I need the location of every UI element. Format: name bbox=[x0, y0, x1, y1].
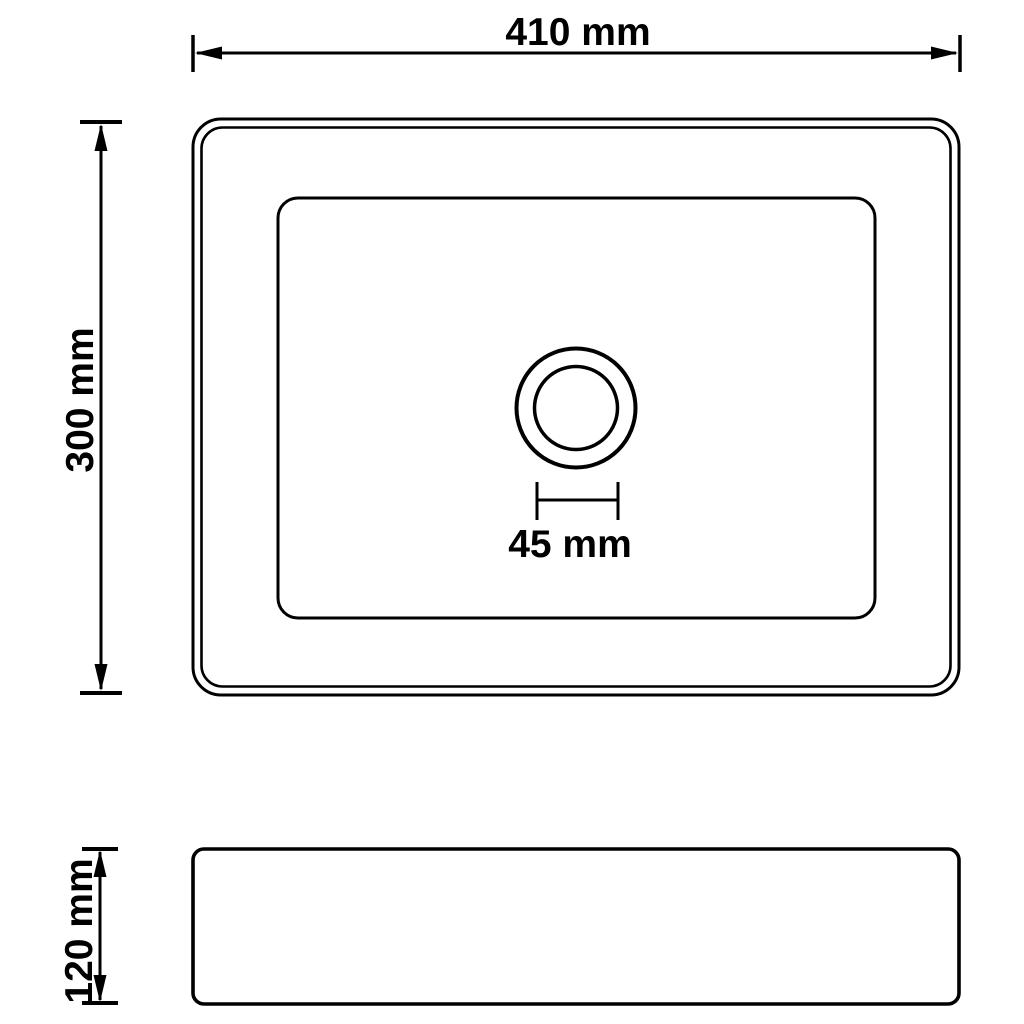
width-dimension: 410 mm bbox=[193, 11, 960, 72]
depth-dim-arrow-up-icon bbox=[95, 124, 108, 151]
height-dimension: 120 mm bbox=[58, 849, 118, 1004]
depth-dimension: 300 mm bbox=[59, 122, 122, 693]
technical-drawing-canvas: 410 mm 300 mm 45 mm bbox=[0, 0, 1024, 1024]
width-dim-arrow-left-icon bbox=[195, 47, 222, 60]
top-view-outer-outline bbox=[193, 119, 959, 695]
top-view bbox=[193, 119, 959, 695]
drain-inner-circle bbox=[535, 367, 618, 450]
height-dimension-label: 120 mm bbox=[58, 858, 101, 1003]
side-view bbox=[193, 849, 959, 1004]
washbasin-dimension-drawing: 410 mm 300 mm 45 mm bbox=[0, 0, 1024, 1024]
side-view-outline bbox=[193, 849, 959, 1004]
drain-dimension: 45 mm bbox=[508, 482, 632, 566]
depth-dimension-label: 300 mm bbox=[59, 327, 102, 472]
top-view-rim-line bbox=[202, 128, 951, 687]
width-dimension-label: 410 mm bbox=[505, 11, 650, 54]
drain-dimension-label: 45 mm bbox=[508, 523, 632, 566]
depth-dim-arrow-down-icon bbox=[95, 664, 108, 691]
width-dim-arrow-right-icon bbox=[931, 47, 958, 60]
